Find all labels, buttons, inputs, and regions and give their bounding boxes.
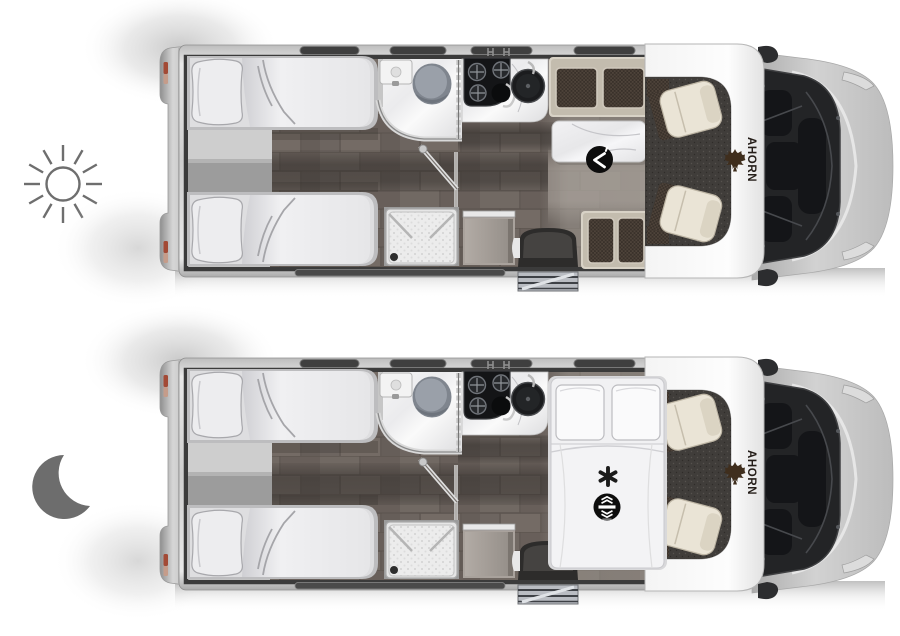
svg-text:AHORN: AHORN (745, 137, 757, 182)
svg-text:AHORN: AHORN (745, 450, 757, 495)
